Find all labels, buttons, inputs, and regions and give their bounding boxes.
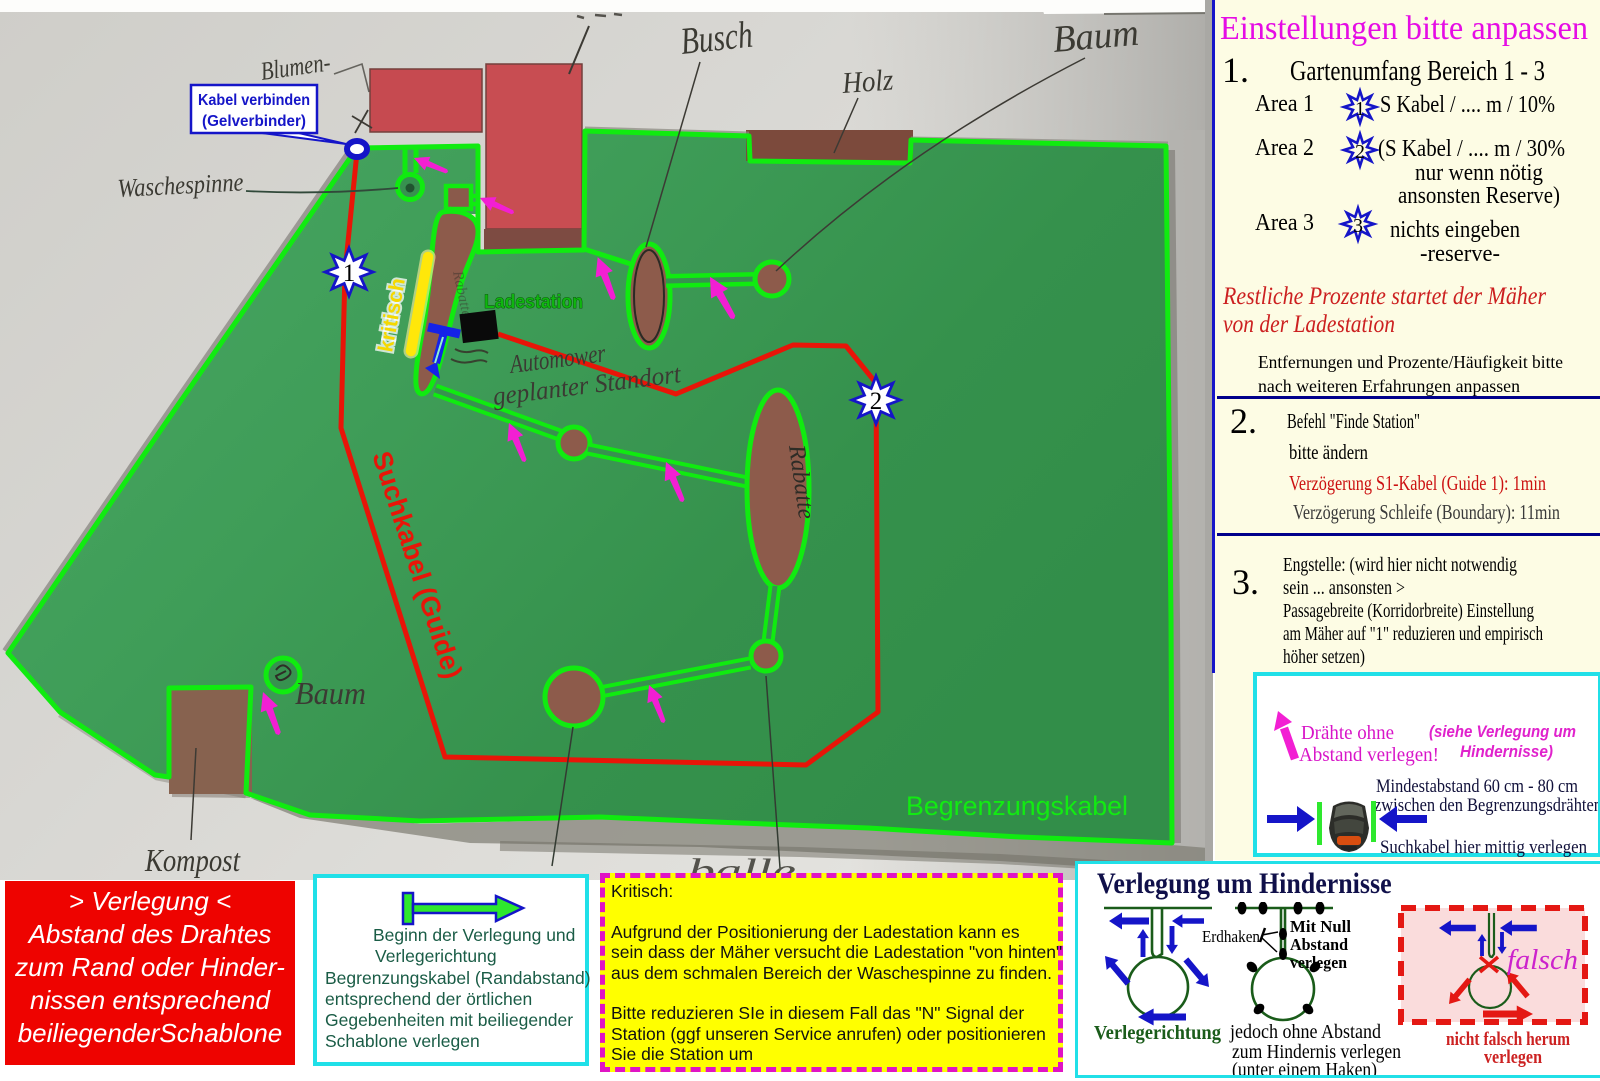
svg-text:3: 3 xyxy=(1353,215,1363,237)
svg-text:3.: 3. xyxy=(1232,562,1259,602)
svg-text:zwischen den Begrenzungsdrähte: zwischen den Begrenzungsdrähten xyxy=(1374,795,1598,816)
svg-text:Hindernisse): Hindernisse) xyxy=(1460,743,1553,761)
svg-text:Mindestabstand 60 cm - 80 cm: Mindestabstand 60 cm - 80 cm xyxy=(1376,776,1578,797)
svg-text:verlegen: verlegen xyxy=(1484,1047,1542,1068)
svg-text:Engstelle: (wird hier nicht no: Engstelle: (wird hier nicht notwendig xyxy=(1283,555,1517,576)
svg-text:Drähte ohne: Drähte ohne xyxy=(1301,722,1394,744)
svg-text:Begrenzungskabel: Begrenzungskabel xyxy=(906,791,1128,821)
svg-text:Holz: Holz xyxy=(840,63,894,100)
svg-text:ansonsten Reserve): ansonsten Reserve) xyxy=(1398,183,1560,209)
svg-text:verlegen: verlegen xyxy=(1290,953,1348,972)
svg-text:Einstellungen bitte anpassen: Einstellungen bitte anpassen xyxy=(1220,10,1588,47)
svg-text:(unter einem Haken): (unter einem Haken) xyxy=(1232,1059,1377,1078)
svg-text:nichts eingeben: nichts eingeben xyxy=(1390,217,1520,243)
svg-text:Befehl "Finde Station": Befehl "Finde Station" xyxy=(1287,409,1420,433)
svg-text:sein ... ansonsten >: sein ... ansonsten > xyxy=(1283,578,1405,599)
svg-text:1.: 1. xyxy=(1222,50,1249,90)
svg-text:Kompost: Kompost xyxy=(144,842,241,878)
svg-text:Ladestation: Ladestation xyxy=(484,292,583,313)
svg-text:Suchkabel hier mittig verlegen: Suchkabel hier mittig verlegen xyxy=(1380,837,1587,858)
svg-text:Area 1: Area 1 xyxy=(1255,91,1314,117)
svg-text:Abstand verlegen!: Abstand verlegen! xyxy=(1299,744,1439,766)
svg-text:2: 2 xyxy=(1355,141,1365,163)
svg-text:falsch: falsch xyxy=(1507,944,1578,976)
svg-text:Verzögerung S1-Kabel (Guide 1): Verzögerung S1-Kabel (Guide 1): 1min xyxy=(1289,471,1546,495)
svg-text:Abstand: Abstand xyxy=(1290,935,1349,954)
svg-text:S Kabel / .... m / 10%: S Kabel / .... m / 10% xyxy=(1380,92,1555,118)
svg-text:Baum: Baum xyxy=(295,675,366,711)
svg-text:Restliche Prozente startet de: Restliche Prozente startet der Mäher xyxy=(1222,283,1546,310)
svg-text:bitte ändern: bitte ändern xyxy=(1289,440,1368,464)
svg-text:(Gelverbinder): (Gelverbinder) xyxy=(202,113,306,130)
svg-text:Verzögerung Schleife (Boundary: Verzögerung Schleife (Boundary): 11min xyxy=(1293,500,1560,524)
svg-text:höher setzen): höher setzen) xyxy=(1283,647,1365,668)
svg-text:2: 2 xyxy=(870,388,883,415)
svg-text:Mit Null: Mit Null xyxy=(1290,917,1351,936)
svg-text:1: 1 xyxy=(1355,98,1365,120)
svg-text:Passagebreite (Korridorbreite): Passagebreite (Korridorbreite) Einstellu… xyxy=(1283,601,1534,622)
svg-text:Area 2: Area 2 xyxy=(1255,135,1314,161)
svg-text:von der Ladestation: von der Ladestation xyxy=(1223,311,1395,338)
svg-text:Busch: Busch xyxy=(679,14,755,63)
svg-text:Gartenumfang Bereich 1 - 3: Gartenumfang Bereich 1 - 3 xyxy=(1290,55,1545,87)
svg-text:am Mäher auf "1" reduzieren un: am Mäher auf "1" reduzieren und empirisc… xyxy=(1283,624,1543,645)
svg-text:(siehe Verlegung um: (siehe Verlegung um xyxy=(1429,723,1576,741)
svg-text:2.: 2. xyxy=(1230,401,1257,441)
svg-text:Area 3: Area 3 xyxy=(1255,210,1314,236)
svg-text:Entfernungen und Prozente/Häuf: Entfernungen und Prozente/Häufigkeit bit… xyxy=(1258,352,1563,372)
svg-text:1: 1 xyxy=(343,260,356,287)
svg-text:Verlegerichtung: Verlegerichtung xyxy=(1094,1022,1221,1044)
svg-text:(S Kabel / .... m / 30%: (S Kabel / .... m / 30% xyxy=(1378,136,1565,162)
svg-text:Baum: Baum xyxy=(1051,12,1140,61)
svg-text:Kabel verbinden: Kabel verbinden xyxy=(198,92,310,109)
svg-text:-reserve-: -reserve- xyxy=(1420,241,1500,267)
svg-text:Erdhaken: Erdhaken xyxy=(1202,927,1260,946)
svg-text:jedoch ohne Abstand: jedoch ohne Abstand xyxy=(1229,1021,1381,1043)
svg-text:nach weiteren Erfahrungen anpa: nach weiteren Erfahrungen anpassen xyxy=(1258,376,1520,396)
